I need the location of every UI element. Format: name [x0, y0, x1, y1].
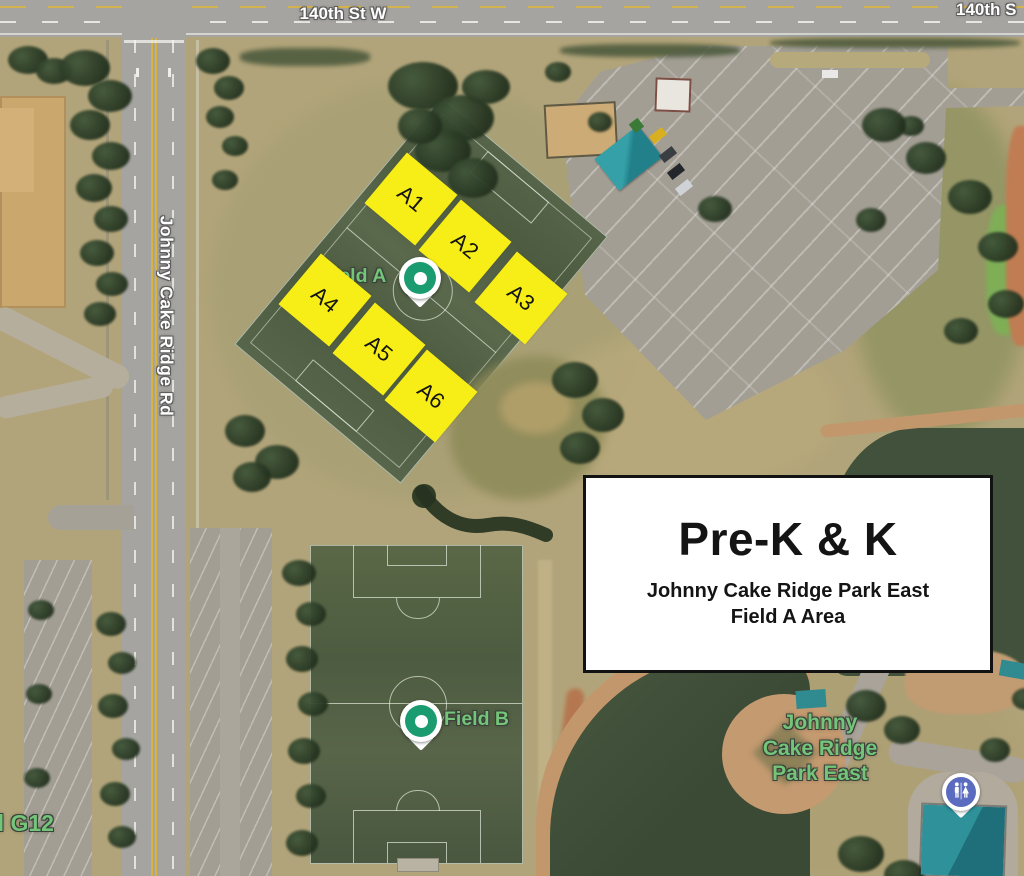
field-marker-label: A2 — [446, 227, 484, 265]
tree — [838, 836, 884, 872]
road-center-yellow — [151, 38, 153, 876]
penalty-arc — [396, 598, 440, 619]
parking-lot-south-center — [190, 528, 272, 876]
tree — [698, 196, 732, 222]
pin-dot — [415, 715, 428, 728]
tree — [76, 174, 112, 202]
tree — [24, 768, 50, 788]
road-center-yellow — [155, 38, 157, 876]
field-a-pin[interactable] — [399, 257, 441, 313]
road-label-140th-st-w[interactable]: 140th St W — [268, 4, 418, 24]
field-b-pin[interactable] — [400, 700, 442, 756]
tree — [96, 612, 126, 636]
tree — [100, 782, 130, 806]
tree — [286, 646, 318, 672]
tree — [96, 272, 128, 296]
tree — [28, 600, 54, 620]
info-box: Pre-K & K Johnny Cake Ridge Park East Fi… — [583, 475, 993, 673]
pin-dot — [414, 272, 427, 285]
tree — [108, 826, 136, 848]
restroom-pin[interactable] — [942, 773, 980, 823]
park-east-label[interactable]: Johnny Cake Ridge Park East — [720, 710, 920, 787]
tree — [978, 232, 1018, 262]
tree — [233, 462, 271, 492]
park-east-label-line1: Johnny — [720, 710, 920, 736]
tree — [298, 692, 328, 716]
soccer-goal — [397, 858, 439, 872]
field-b-label[interactable]: Field B — [444, 708, 509, 731]
map-canvas: A1 A2 A3 A4 A5 A6 Field A Field B Johnny… — [0, 0, 1024, 876]
tree — [212, 170, 238, 190]
tree — [980, 738, 1010, 762]
dirt-playground — [0, 108, 34, 192]
tree — [214, 76, 244, 100]
tree — [108, 652, 136, 674]
tree — [282, 560, 316, 586]
tree — [225, 415, 265, 447]
tree — [80, 240, 114, 266]
parking-aisle — [220, 528, 240, 876]
tree — [94, 206, 128, 232]
tree — [222, 136, 248, 156]
field-marker-label: A6 — [412, 377, 450, 415]
dugout-roof — [795, 689, 826, 709]
tree — [112, 738, 140, 760]
tree — [288, 738, 320, 764]
penalty-arc — [396, 790, 440, 811]
tree — [552, 362, 598, 398]
tree — [88, 80, 132, 112]
tree — [560, 432, 600, 464]
tree — [545, 62, 571, 82]
park-east-label-line2: Cake Ridge — [720, 736, 920, 762]
tree — [582, 398, 624, 432]
tree — [296, 602, 326, 626]
tree — [988, 290, 1024, 318]
tree — [948, 180, 992, 214]
parked-car — [822, 70, 838, 78]
info-box-subtitle-line1: Johnny Cake Ridge Park East — [586, 578, 990, 604]
tree — [448, 158, 498, 198]
tree — [70, 110, 110, 140]
tree — [196, 48, 230, 74]
field-marker-label: A3 — [502, 279, 540, 317]
tree — [92, 142, 130, 170]
lot-entrance-drive — [48, 505, 134, 530]
creek-brush — [408, 478, 558, 548]
hedge-row — [240, 48, 370, 66]
parking-median — [770, 52, 930, 68]
info-box-title: Pre-K & K — [586, 512, 990, 566]
tree — [26, 684, 52, 704]
shed-building — [654, 77, 691, 112]
goal-box — [387, 545, 447, 566]
turn-arrow — [168, 68, 171, 77]
hedge-row — [770, 38, 1020, 48]
tree — [906, 142, 946, 174]
field-g12-label-partial[interactable]: d G12 — [0, 810, 54, 837]
tree — [286, 830, 318, 856]
tree — [98, 694, 128, 718]
tree — [588, 112, 612, 132]
restroom-icon — [951, 781, 971, 801]
tree — [398, 108, 442, 144]
park-path — [0, 374, 115, 420]
road-white-dashes — [172, 40, 174, 876]
tree — [462, 70, 510, 104]
crosswalk-line — [124, 40, 184, 43]
info-box-subtitle-line2: Field A Area — [586, 604, 990, 630]
turn-arrow — [136, 68, 139, 77]
road-label-johnny-cake[interactable]: Johnny Cake Ridge Rd — [156, 216, 177, 417]
field-marker-label: A5 — [360, 330, 398, 368]
tree — [862, 108, 906, 142]
tree — [856, 208, 886, 232]
tree — [84, 302, 116, 326]
hedge-row — [560, 44, 740, 57]
field-marker-label: A4 — [306, 281, 344, 319]
tree — [206, 106, 234, 128]
tree — [944, 318, 978, 344]
park-east-label-line3: Park East — [720, 761, 920, 787]
road-label-140th-s-partial[interactable]: 140th S — [956, 0, 1016, 20]
field-marker-label: A1 — [392, 180, 430, 218]
tree — [296, 784, 326, 808]
